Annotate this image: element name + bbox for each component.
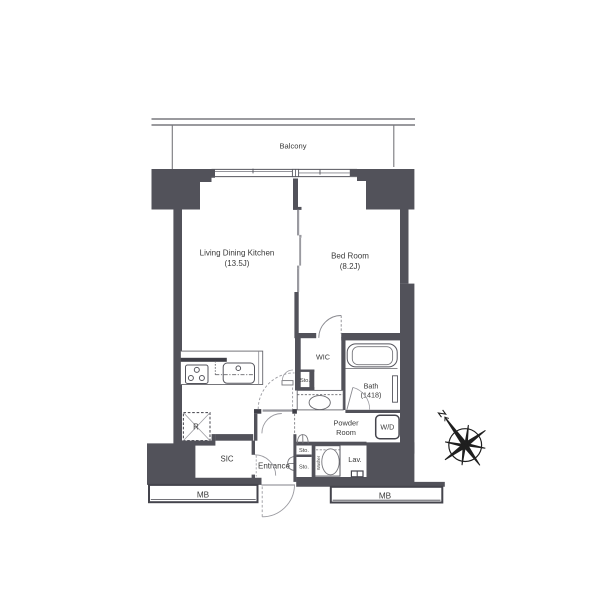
svg-text:MB: MB [379, 492, 392, 501]
svg-text:Bed Room: Bed Room [331, 252, 369, 261]
svg-text:SIC: SIC [221, 455, 234, 464]
svg-text:Bath: Bath [364, 382, 379, 391]
svg-text:WIC: WIC [316, 353, 330, 362]
svg-text:Sto.: Sto. [299, 464, 309, 470]
svg-text:Balcony: Balcony [279, 142, 306, 151]
svg-text:Lav.: Lav. [348, 455, 361, 464]
svg-text:Sto.: Sto. [300, 378, 310, 384]
svg-text:Room: Room [336, 428, 356, 437]
svg-text:R: R [193, 423, 199, 432]
svg-text:Sto.: Sto. [299, 448, 309, 454]
svg-text:Living Dining Kitchen: Living Dining Kitchen [200, 249, 275, 258]
svg-text:MB: MB [197, 491, 210, 500]
svg-text:Washer: Washer [316, 455, 321, 470]
svg-text:Powder: Powder [333, 419, 359, 428]
svg-text:(13.5J): (13.5J) [225, 259, 250, 268]
svg-text:(8.2J): (8.2J) [340, 262, 361, 271]
svg-text:(1418): (1418) [361, 391, 382, 400]
svg-text:W/D: W/D [380, 423, 394, 432]
